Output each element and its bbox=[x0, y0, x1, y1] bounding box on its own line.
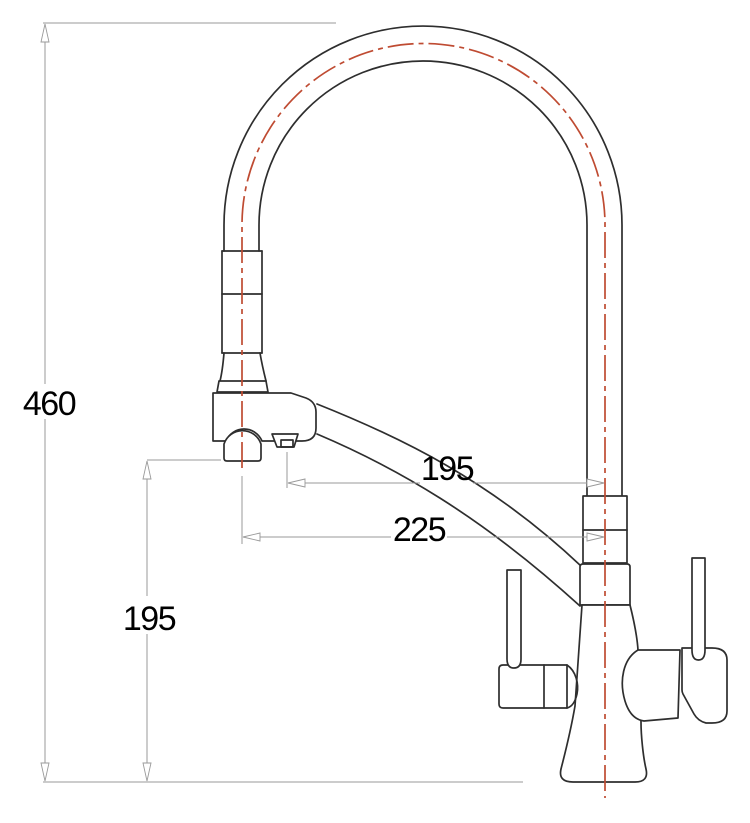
spray-head bbox=[213, 393, 316, 461]
label-upper-reach: 195 bbox=[421, 450, 474, 488]
label-spray-outlet-height: 195 bbox=[123, 600, 176, 638]
label-lower-reach: 225 bbox=[393, 511, 446, 549]
arrow-down-icon bbox=[41, 763, 49, 781]
label-overall-height: 460 bbox=[23, 385, 76, 423]
spray-head-body bbox=[213, 393, 316, 441]
faucet-outline bbox=[213, 26, 727, 782]
spray-hose-curve bbox=[317, 404, 581, 606]
drawing-sheet: 460 195 195 225 bbox=[0, 0, 750, 823]
right-handle-paddle bbox=[682, 648, 727, 723]
left-handle-block bbox=[499, 665, 567, 708]
arrow-left-icon bbox=[243, 533, 260, 541]
left-handle-rod bbox=[507, 570, 521, 668]
arrow-left-icon bbox=[288, 479, 305, 487]
right-handle-hub bbox=[622, 650, 680, 721]
right-handle-rod bbox=[692, 558, 705, 660]
arrow-up-icon bbox=[143, 461, 151, 479]
arrow-up-icon bbox=[41, 24, 49, 42]
arrow-right-icon bbox=[587, 479, 604, 487]
left-handle bbox=[499, 570, 578, 708]
faucet-technical-drawing: 460 195 195 225 bbox=[0, 0, 750, 823]
right-handle bbox=[622, 558, 727, 723]
arrow-down-icon bbox=[143, 763, 151, 781]
